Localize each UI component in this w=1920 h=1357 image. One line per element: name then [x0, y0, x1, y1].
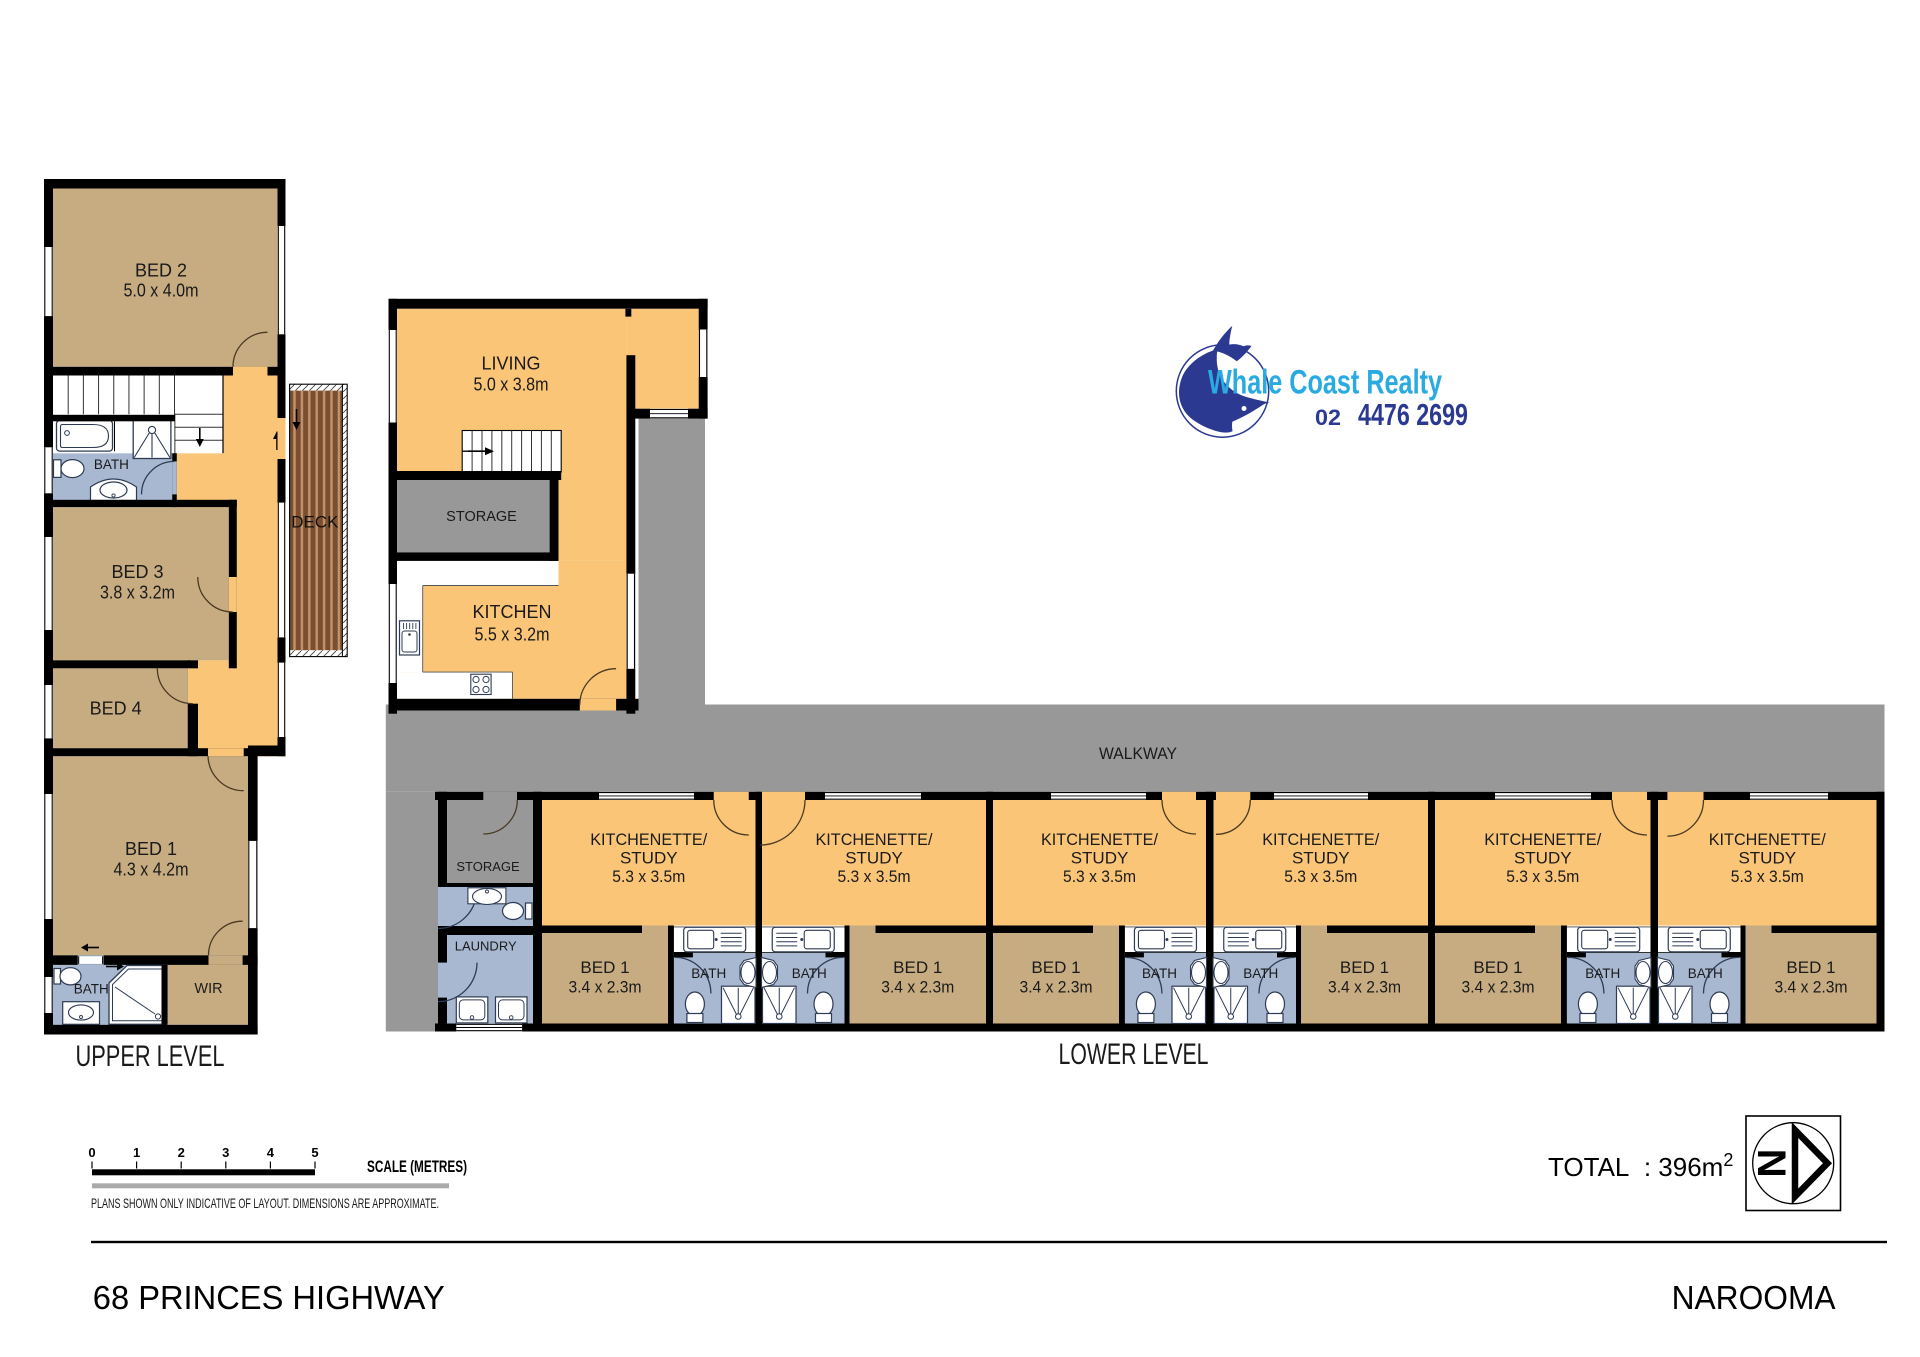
svg-text:5.3 x 3.5m: 5.3 x 3.5m	[838, 867, 911, 886]
svg-text:3.4 x 2.3m: 3.4 x 2.3m	[569, 977, 642, 996]
svg-text:5.0 x 3.8m: 5.0 x 3.8m	[474, 375, 549, 395]
svg-text:KITCHENETTE/: KITCHENETTE/	[816, 830, 933, 849]
svg-text:02: 02	[1315, 405, 1341, 430]
svg-text:BED 1: BED 1	[580, 958, 629, 977]
svg-text:KITCHENETTE/: KITCHENETTE/	[1262, 830, 1379, 849]
svg-text:TOTAL : 396m2: TOTAL : 396m2	[1548, 1150, 1733, 1182]
svg-text:3.4 x 2.3m: 3.4 x 2.3m	[881, 977, 954, 996]
svg-text:5.5 x 3.2m: 5.5 x 3.2m	[475, 625, 550, 645]
svg-text:BATH: BATH	[691, 966, 726, 981]
svg-text:WIR: WIR	[194, 981, 222, 997]
svg-text:BED 2: BED 2	[135, 261, 187, 281]
svg-text:KITCHENETTE/: KITCHENETTE/	[1041, 830, 1158, 849]
svg-text:0: 0	[88, 1145, 95, 1160]
svg-text:4476 2699: 4476 2699	[1358, 397, 1468, 432]
svg-text:DECK: DECK	[291, 513, 339, 532]
svg-text:5.3 x 3.5m: 5.3 x 3.5m	[612, 867, 685, 886]
svg-text:5.3 x 3.5m: 5.3 x 3.5m	[1063, 867, 1136, 886]
svg-text:KITCHENETTE/: KITCHENETTE/	[1484, 830, 1601, 849]
svg-text:3.4 x 2.3m: 3.4 x 2.3m	[1020, 977, 1093, 996]
svg-text:5.3 x 3.5m: 5.3 x 3.5m	[1284, 867, 1357, 886]
svg-text:1: 1	[133, 1145, 140, 1160]
svg-text:LAUNDRY: LAUNDRY	[455, 939, 517, 954]
svg-text:LIVING: LIVING	[481, 354, 540, 374]
svg-text:BED 1: BED 1	[893, 958, 942, 977]
svg-text:N: N	[1749, 1149, 1793, 1178]
svg-text:STORAGE: STORAGE	[446, 509, 517, 525]
svg-text:2: 2	[178, 1145, 185, 1160]
svg-text:BED 1: BED 1	[125, 839, 177, 859]
svg-text:STUDY: STUDY	[1514, 849, 1572, 868]
svg-text:BATH: BATH	[74, 981, 109, 996]
svg-text:BED 4: BED 4	[90, 699, 142, 719]
svg-text:3.4 x 2.3m: 3.4 x 2.3m	[1462, 977, 1535, 996]
svg-text:SCALE (METRES): SCALE (METRES)	[367, 1157, 467, 1176]
svg-text:BED 1: BED 1	[1340, 958, 1389, 977]
svg-text:BED 1: BED 1	[1031, 958, 1080, 977]
svg-text:NAROOMA: NAROOMA	[1672, 1279, 1836, 1316]
svg-text:3.8 x 3.2m: 3.8 x 3.2m	[100, 582, 175, 602]
svg-text:BATH: BATH	[94, 457, 129, 472]
svg-text:BED 3: BED 3	[111, 562, 163, 582]
svg-text:STORAGE: STORAGE	[456, 859, 520, 874]
svg-text:STUDY: STUDY	[845, 849, 903, 868]
svg-text:4: 4	[267, 1145, 275, 1160]
svg-text:4.3 x 4.2m: 4.3 x 4.2m	[114, 859, 189, 879]
svg-text:BATH: BATH	[792, 966, 827, 981]
svg-text:KITCHEN: KITCHEN	[472, 602, 551, 622]
svg-text:BATH: BATH	[1585, 966, 1620, 981]
svg-text:STUDY: STUDY	[620, 849, 678, 868]
svg-text:BATH: BATH	[1688, 966, 1723, 981]
svg-text:BED 1: BED 1	[1786, 958, 1835, 977]
svg-text:STUDY: STUDY	[1292, 849, 1350, 868]
svg-text:5: 5	[311, 1145, 318, 1160]
svg-text:BATH: BATH	[1243, 966, 1278, 981]
svg-text:LOWER LEVEL: LOWER LEVEL	[1059, 1038, 1209, 1071]
svg-text:3.4 x 2.3m: 3.4 x 2.3m	[1328, 977, 1401, 996]
svg-text:PLANS SHOWN ONLY INDICATIVE OF: PLANS SHOWN ONLY INDICATIVE OF LAYOUT. D…	[91, 1195, 439, 1211]
svg-text:5.3 x 3.5m: 5.3 x 3.5m	[1506, 867, 1579, 886]
svg-text:5.3 x 3.5m: 5.3 x 3.5m	[1731, 867, 1804, 886]
svg-text:KITCHENETTE/: KITCHENETTE/	[1709, 830, 1826, 849]
svg-text:KITCHENETTE/: KITCHENETTE/	[590, 830, 707, 849]
svg-text:BATH: BATH	[1142, 966, 1177, 981]
svg-text:BED 1: BED 1	[1473, 958, 1522, 977]
svg-text:68 PRINCES HIGHWAY: 68 PRINCES HIGHWAY	[93, 1279, 445, 1316]
svg-text:UPPER LEVEL: UPPER LEVEL	[76, 1040, 225, 1073]
svg-text:STUDY: STUDY	[1738, 849, 1796, 868]
svg-text:STUDY: STUDY	[1071, 849, 1129, 868]
svg-text:3.4 x 2.3m: 3.4 x 2.3m	[1775, 977, 1848, 996]
svg-text:3: 3	[222, 1145, 229, 1160]
svg-text:WALKWAY: WALKWAY	[1099, 744, 1177, 763]
svg-text:5.0 x 4.0m: 5.0 x 4.0m	[124, 281, 199, 301]
svg-text:Whale Coast Realty: Whale Coast Realty	[1208, 364, 1442, 402]
